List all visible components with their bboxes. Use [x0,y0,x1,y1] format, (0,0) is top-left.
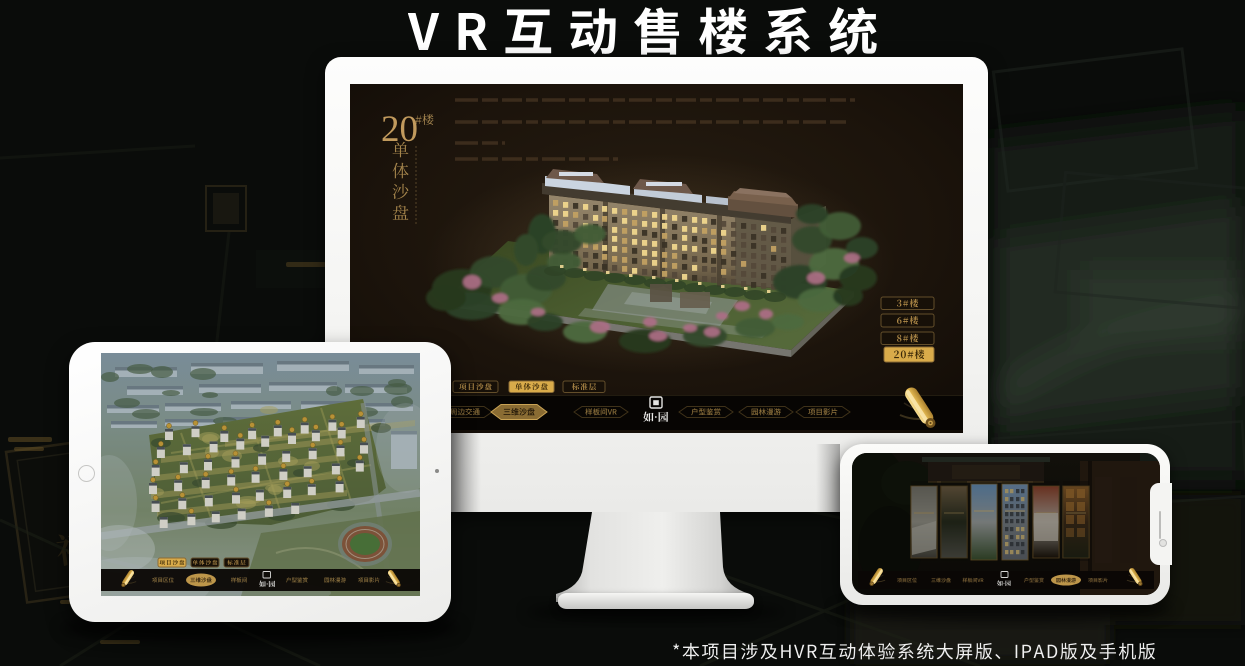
svg-text:20: 20 [381,109,418,150]
